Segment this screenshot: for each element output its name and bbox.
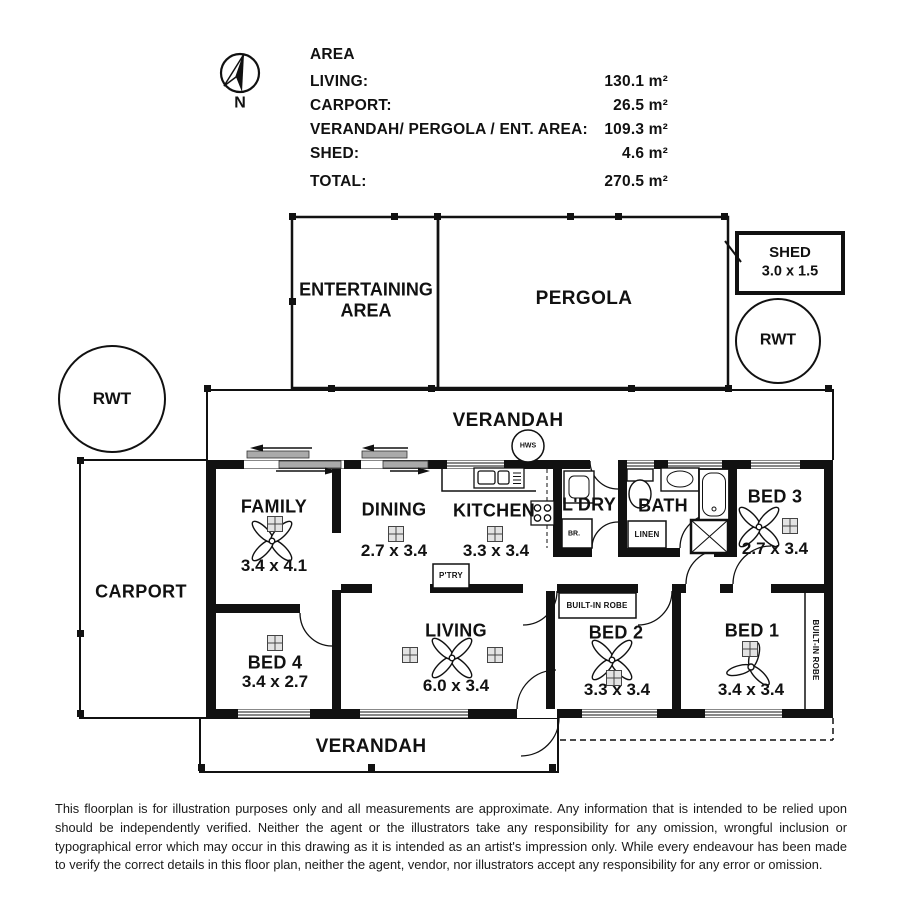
disclaimer-text: This floorplan is for illustration purpo… <box>55 800 847 875</box>
carport-label: CARPORT <box>95 583 187 602</box>
sliding-door-family <box>247 445 341 475</box>
robe-bed1-label: BUILT-IN ROBE <box>811 619 819 680</box>
area-row-total: TOTAL:270.5 m² <box>310 173 668 191</box>
rwt-right-label: RWT <box>760 333 796 350</box>
linen-label: LINEN <box>635 531 660 539</box>
room-label-bed4: BED 4 <box>248 654 303 673</box>
room-label-kitchen: KITCHEN <box>453 502 535 521</box>
door-arc-bed4 <box>300 613 332 646</box>
shower-icon <box>691 520 728 553</box>
door-arc-living-verandah-out <box>521 718 559 756</box>
area-row-carport: CARPORT:26.5 m² <box>310 97 668 115</box>
robe-bed2-label: BUILT-IN ROBE <box>566 602 627 610</box>
area-table-title: AREA <box>310 46 668 64</box>
vent-icon-kitchen <box>488 527 503 542</box>
entertaining-area-label: ENTERTAINING <box>299 281 433 300</box>
room-label-family: FAMILY <box>241 498 307 517</box>
vanity-basin-icon <box>661 468 699 491</box>
vent-icon-living-right <box>488 648 503 663</box>
verandah-top-label: VERANDAH <box>453 411 564 431</box>
room-label-living: LIVING <box>425 622 487 641</box>
room-dims-bed1: 3.4 x 3.4 <box>718 681 784 699</box>
area-row-shed: SHED:4.6 m² <box>310 145 668 163</box>
north-arrow-icon <box>221 54 259 92</box>
room-label-bed3: BED 3 <box>748 488 803 507</box>
room-label-laundry: L'DRY <box>562 496 616 515</box>
vent-icon-bed3 <box>783 519 798 534</box>
vent-icon-dining <box>389 527 404 542</box>
area-table: AREA LIVING:130.1 m² CARPORT:26.5 m² VER… <box>310 46 668 197</box>
hws-label: HWS <box>520 442 536 449</box>
room-label-bath: BATH <box>638 497 688 516</box>
area-row-verandah: VERANDAH/ PERGOLA / ENT. AREA:109.3 m² <box>310 121 668 139</box>
pantry-label: P'TRY <box>439 572 463 580</box>
vent-icon-bed1 <box>743 642 758 657</box>
area-row-living: LIVING:130.1 m² <box>310 73 668 91</box>
room-dims-kitchen: 3.3 x 3.4 <box>463 542 529 560</box>
compass-label: N <box>234 96 246 113</box>
room-dims-bed3: 2.7 x 3.4 <box>742 540 808 558</box>
kitchen-sink-icon <box>474 468 524 488</box>
verandah-bottom-label: VERANDAH <box>316 737 427 757</box>
vent-icon-family <box>268 517 283 532</box>
pergola-label: PERGOLA <box>536 289 633 309</box>
ceiling-fan-icon-living <box>429 635 474 680</box>
vent-icon-bed4 <box>268 636 283 651</box>
room-label-dining: DINING <box>362 501 427 520</box>
room-dims-dining: 2.7 x 3.4 <box>361 542 427 560</box>
shed-label: SHED <box>769 245 811 261</box>
bathtub-icon <box>699 469 729 520</box>
entertaining-area-label2: AREA <box>340 302 391 321</box>
door-arc-bed2 <box>638 591 672 625</box>
vent-icon-living-left <box>403 648 418 663</box>
room-label-bed1: BED 1 <box>725 622 780 641</box>
rwt-left-label: RWT <box>93 390 131 408</box>
room-label-bed2: BED 2 <box>589 624 644 643</box>
broom-label: BR. <box>568 530 580 537</box>
floorplan: N AREA LIVING:130.1 m² CARPORT:26.5 m² V… <box>0 0 900 907</box>
room-dims-bed2: 3.3 x 3.4 <box>584 681 650 699</box>
room-dims-bed4: 3.4 x 2.7 <box>242 673 308 691</box>
room-dims-family: 3.4 x 4.1 <box>241 557 307 575</box>
shed-dims: 3.0 x 1.5 <box>762 264 818 279</box>
verandah-dashed-extent <box>560 718 833 740</box>
door-arc-laundry-hall <box>592 522 618 548</box>
room-dims-living: 6.0 x 3.4 <box>423 677 489 695</box>
sliding-door-dining <box>362 445 430 475</box>
